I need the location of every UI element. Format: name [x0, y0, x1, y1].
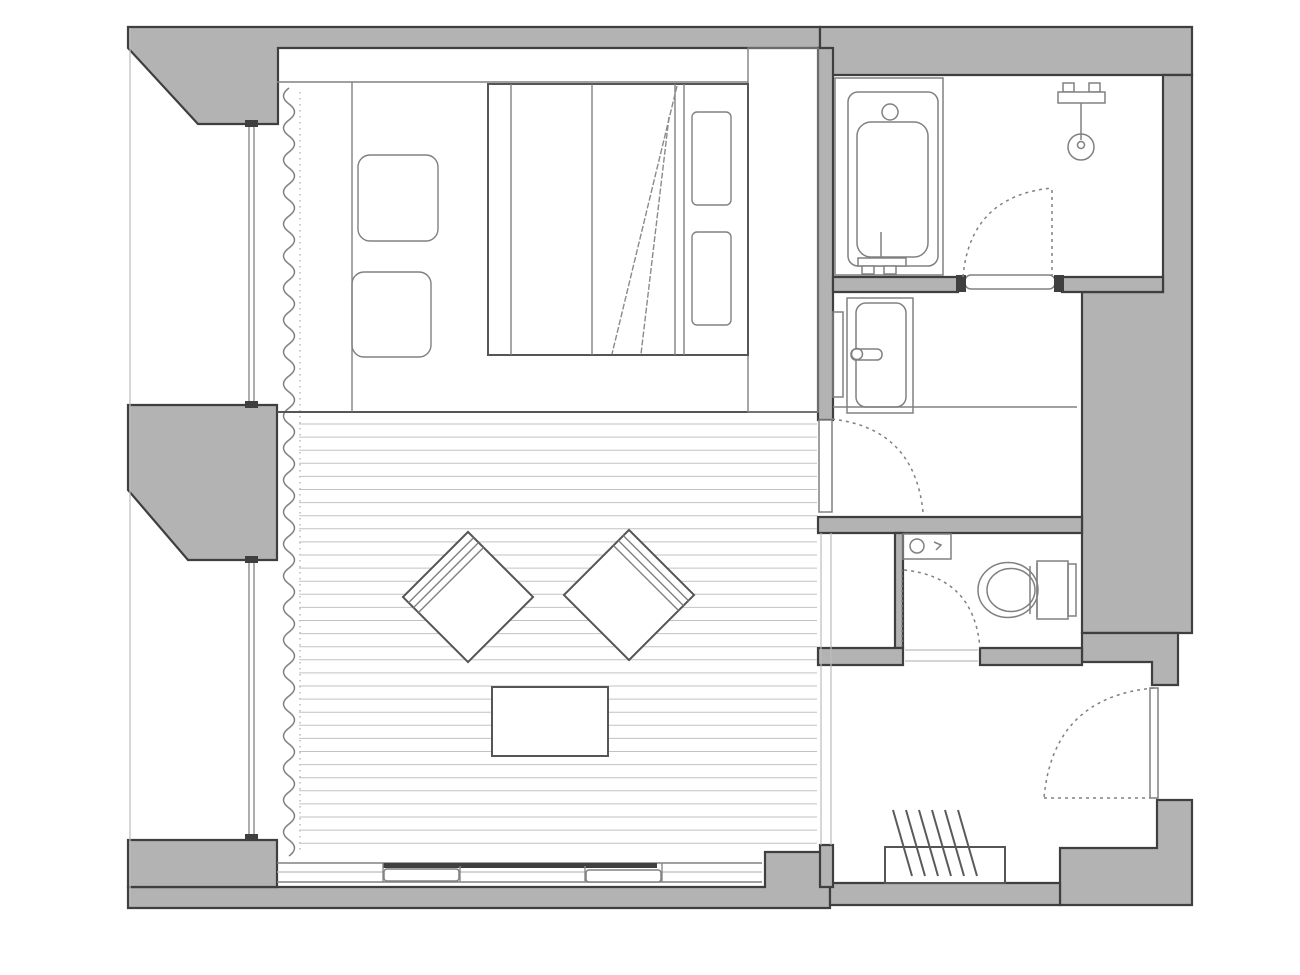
door-swing-arc — [1044, 688, 1154, 798]
door-swing-arc — [904, 570, 980, 648]
hand-basin-faucet — [934, 542, 941, 550]
tub-platform — [835, 78, 943, 275]
window-sliding-panel — [586, 870, 661, 882]
hand-basin — [903, 534, 951, 559]
bathtub-outer — [848, 92, 938, 266]
south-window — [277, 863, 762, 882]
bedroom-area — [277, 48, 818, 412]
floor-plan-drawing — [0, 0, 1300, 975]
bed-outline — [488, 84, 748, 355]
wall-bath-south-right — [1062, 277, 1163, 292]
sink-faucet — [851, 349, 882, 360]
window-jamb — [245, 834, 258, 841]
lounge-chair-left — [403, 532, 533, 662]
bed — [488, 84, 748, 355]
wall-bath-south-left — [833, 277, 958, 292]
window-dark-rail — [383, 863, 657, 868]
towel-shelf — [833, 312, 843, 397]
window-jamb — [245, 401, 258, 408]
wall-top-right — [820, 27, 1192, 75]
tub-faucet-foot — [862, 266, 874, 274]
door-jamb — [1054, 275, 1064, 292]
vanity-room — [819, 298, 1077, 845]
entrance-door — [1044, 688, 1158, 798]
wall-vanity-south — [818, 517, 1082, 533]
wardrobe — [748, 48, 818, 412]
bathroom-door — [956, 188, 1064, 292]
wall-entry-jamb-top — [1082, 633, 1178, 685]
wall-left-pier — [128, 405, 277, 560]
window-sliding-panel — [384, 869, 459, 881]
vanity-door — [819, 419, 923, 512]
wall-right-column — [1082, 75, 1192, 633]
bathtub — [848, 92, 938, 274]
side-table — [352, 272, 431, 357]
bathtub-drain — [882, 104, 898, 120]
side-table — [358, 155, 438, 241]
toilet-tank-back — [1068, 564, 1076, 616]
toilet-tank — [1037, 561, 1068, 619]
living-area — [299, 424, 817, 843]
bathroom — [835, 78, 1105, 292]
toilet-door — [902, 570, 980, 661]
door-leaf — [1150, 688, 1158, 798]
plank-floor-lines — [299, 424, 817, 843]
window-jamb — [245, 120, 258, 127]
door-swing-arc — [963, 188, 1052, 277]
chair-seat — [564, 530, 694, 660]
chair-seat — [403, 532, 533, 662]
shower-fixture — [1058, 83, 1105, 160]
wall-toilet-south-right — [980, 648, 1082, 665]
curtain-wave — [284, 88, 295, 856]
wall-bottom-left — [128, 840, 277, 887]
coffee-table — [492, 687, 608, 756]
tub-faucet-bar — [858, 258, 906, 266]
tub-faucet-foot — [884, 266, 896, 274]
toilet — [978, 561, 1076, 619]
shower-head-center — [1078, 142, 1085, 149]
toilet-room — [902, 534, 1076, 661]
shower-valve-bar — [1058, 92, 1105, 103]
wall-bottom-right — [1060, 800, 1192, 905]
hand-basin-bowl — [910, 539, 924, 553]
shower-handle — [1063, 83, 1074, 92]
bathtub-inner — [857, 122, 928, 257]
wall-bath-partition — [818, 48, 833, 420]
door-threshold — [965, 275, 1055, 289]
door-swing-arc — [832, 419, 923, 512]
wall-bottom-entry — [830, 883, 1060, 905]
floor-plan-canvas — [0, 0, 1300, 975]
door-jamb — [956, 275, 966, 292]
shower-handle — [1089, 83, 1100, 92]
toilet-bowl-rim — [987, 569, 1035, 612]
window-jamb — [245, 556, 258, 563]
wall-entry-partition-foot — [820, 845, 833, 887]
lounge-chair-right — [564, 530, 694, 660]
door-leaf — [819, 420, 832, 512]
